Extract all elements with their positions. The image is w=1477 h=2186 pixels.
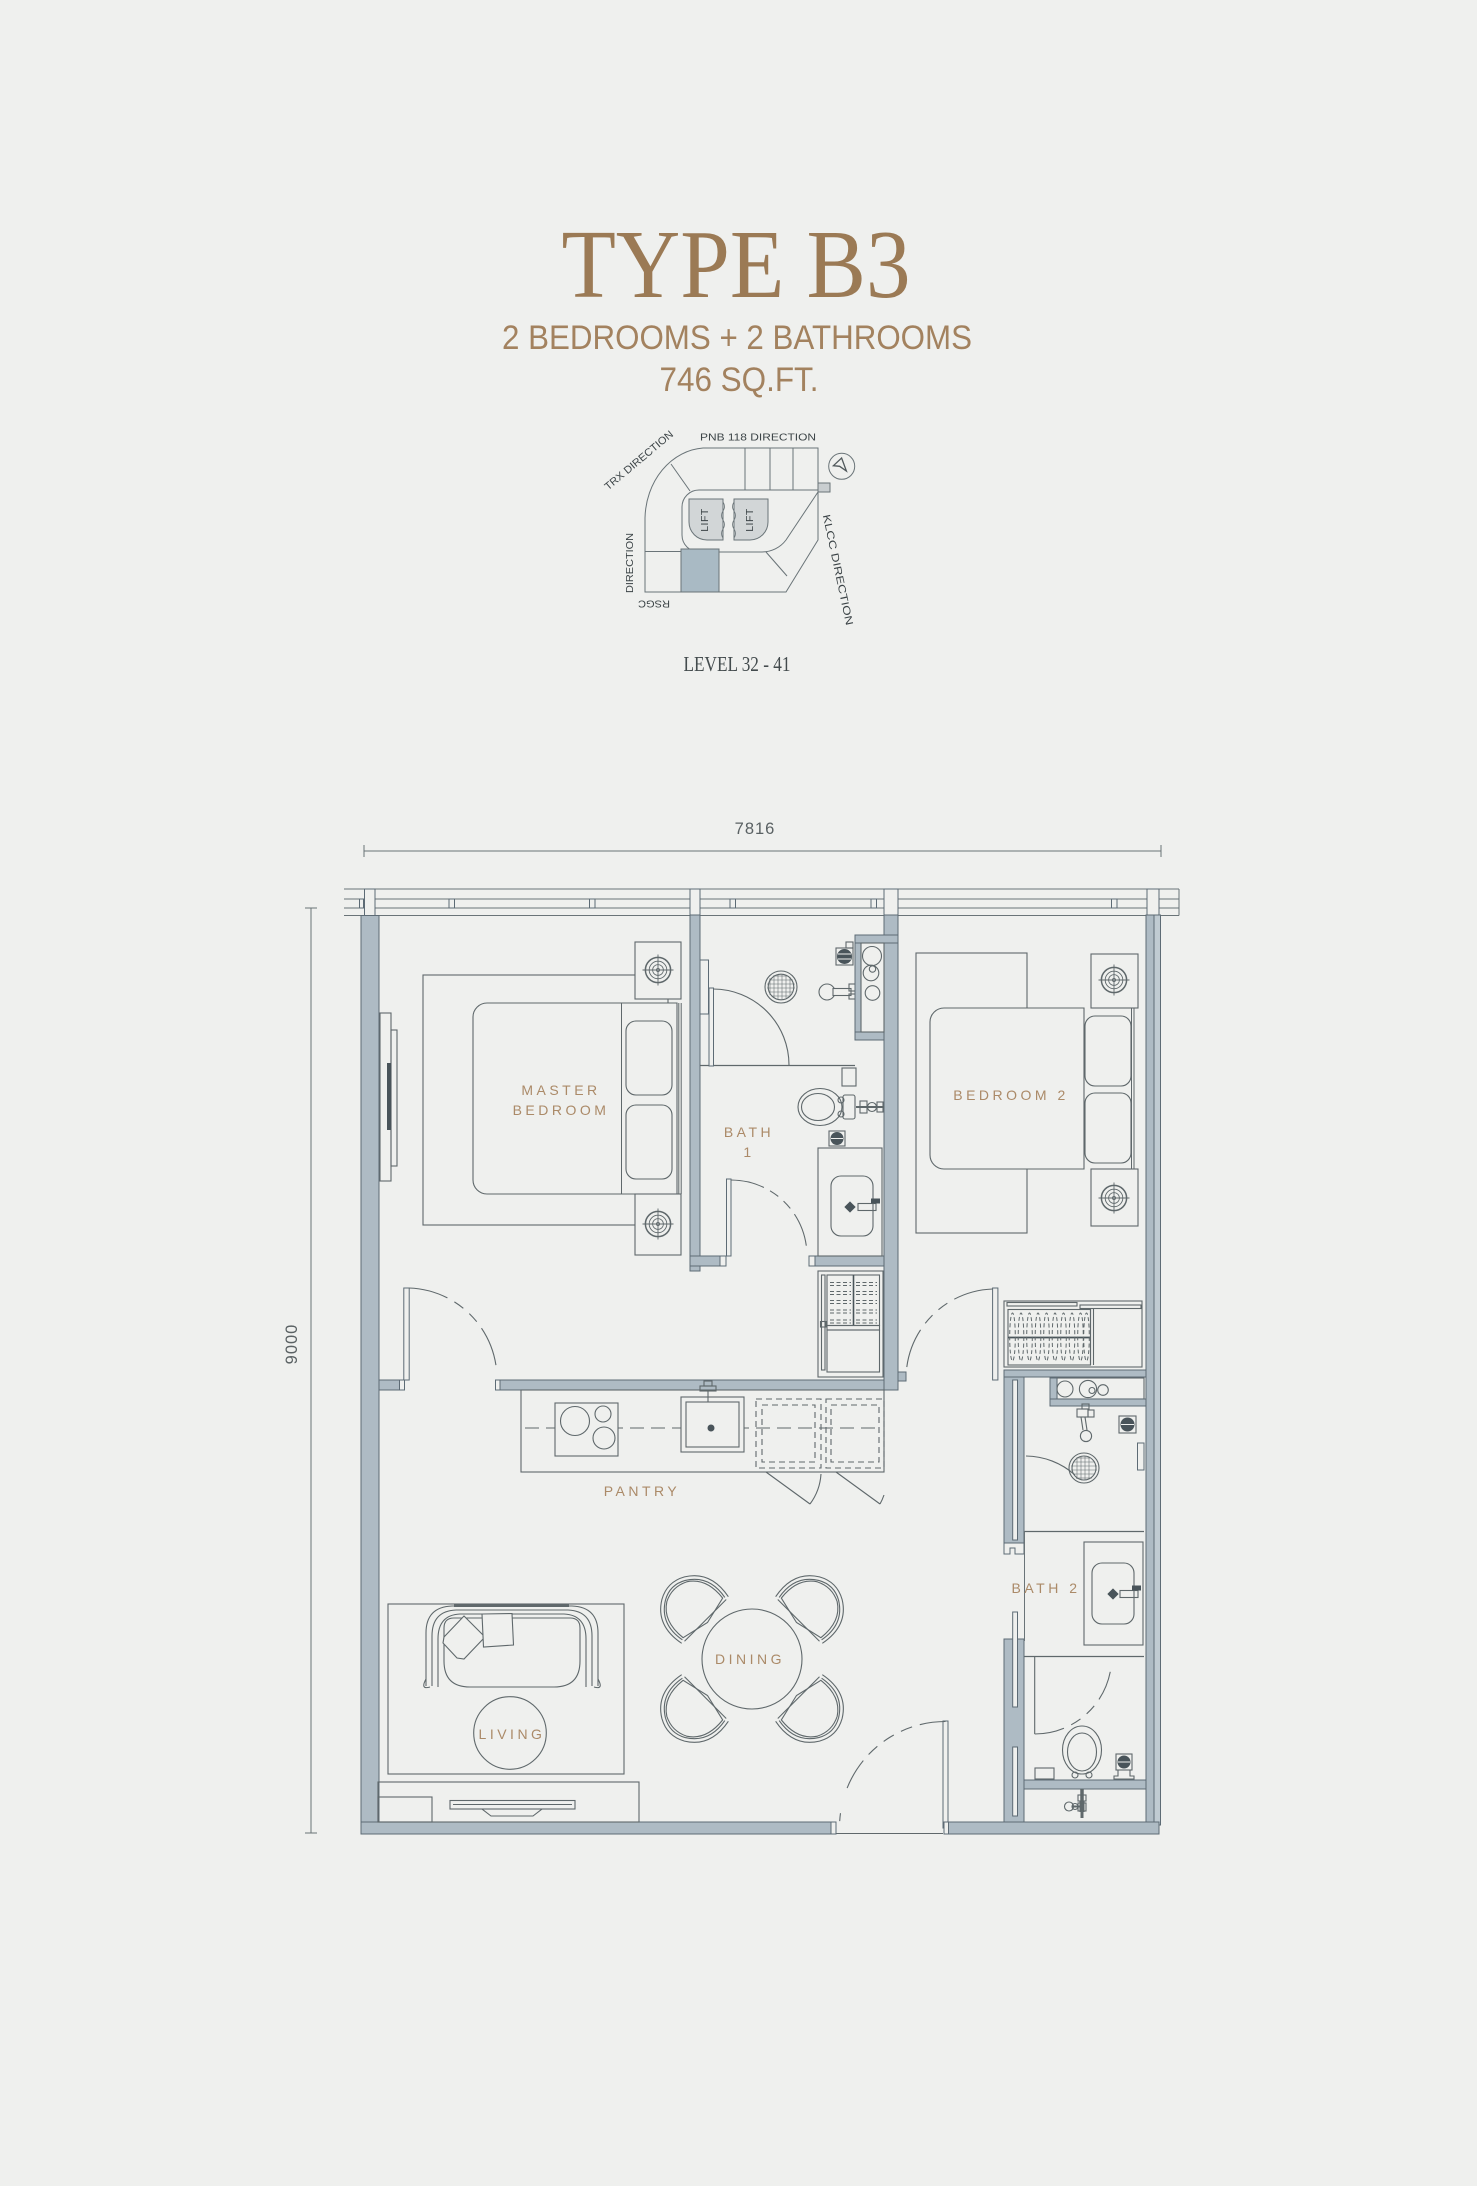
svg-text:MASTER: MASTER [521,1082,600,1098]
svg-text:PANTRY: PANTRY [604,1483,681,1499]
svg-text:TYPE B3: TYPE B3 [562,211,911,318]
svg-text:LIFT: LIFT [699,508,711,532]
svg-text:LIVING: LIVING [479,1726,546,1742]
svg-text:LEVEL 32 - 41: LEVEL 32 - 41 [684,652,791,676]
svg-text:746 SQ.FT.: 746 SQ.FT. [660,361,819,399]
svg-text:BEDROOM: BEDROOM [513,1102,610,1118]
svg-text:2 BEDROOMS + 2 BATHROOMS: 2 BEDROOMS + 2 BATHROOMS [502,319,972,357]
svg-text:RSGC: RSGC [638,598,670,610]
svg-text:LIFT: LIFT [744,508,756,532]
svg-text:9000: 9000 [283,1324,301,1365]
svg-text:1: 1 [743,1144,754,1160]
svg-text:DINING: DINING [715,1651,785,1667]
svg-text:7816: 7816 [735,820,776,838]
svg-text:BATH: BATH [724,1124,774,1140]
svg-text:PNB 118 DIRECTION: PNB 118 DIRECTION [700,432,816,444]
svg-text:DIRECTION: DIRECTION [624,533,636,593]
svg-text:BATH 2: BATH 2 [1012,1580,1081,1596]
svg-text:BEDROOM 2: BEDROOM 2 [953,1087,1069,1103]
